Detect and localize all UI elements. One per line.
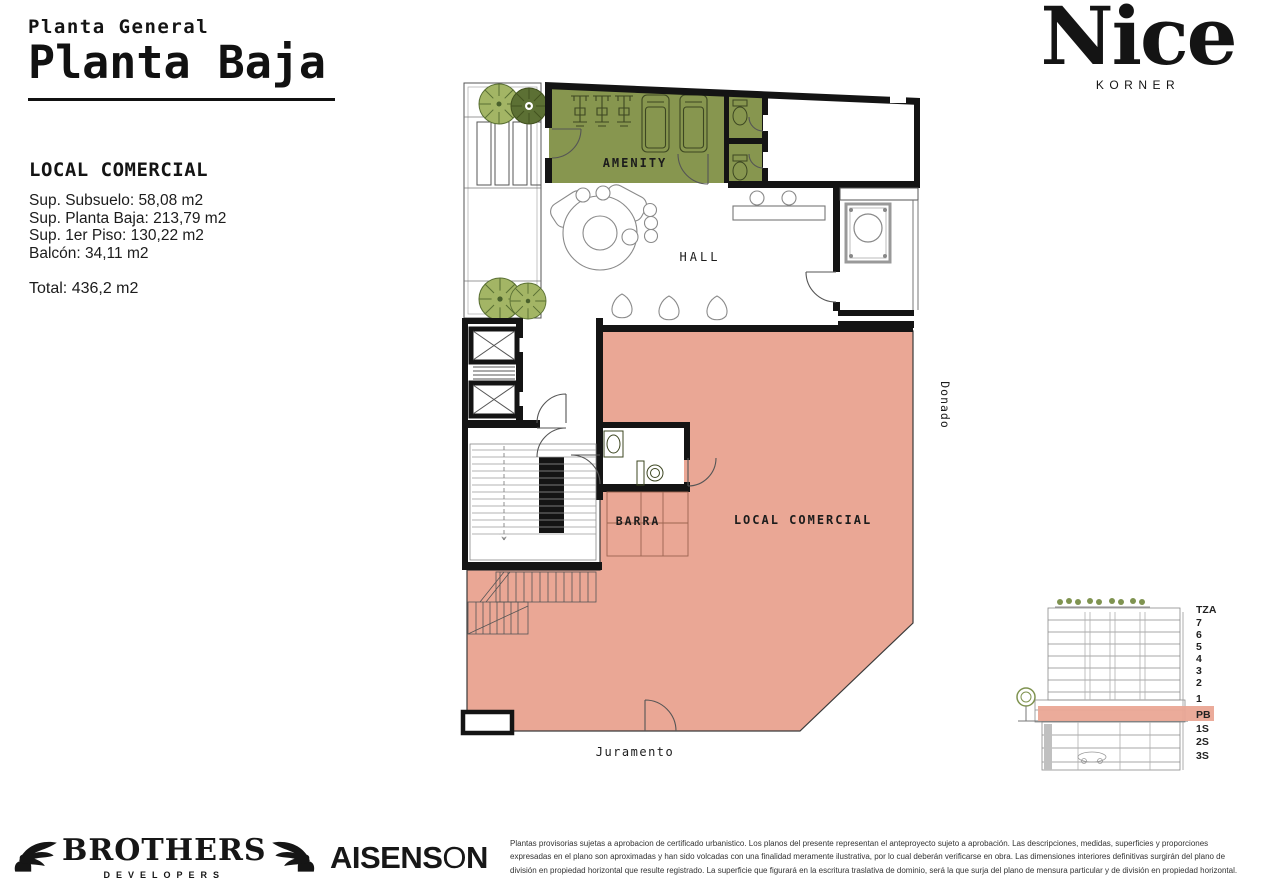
aisenson-logo: AISENSON xyxy=(330,840,488,876)
winged-lion-right-icon xyxy=(269,835,317,881)
label-street-donado: Donado xyxy=(938,381,952,429)
unit-name: LOCAL COMERCIAL xyxy=(29,159,226,181)
brand-logo: Nice KORNER xyxy=(1038,0,1238,92)
floor-label-6: 6 xyxy=(1196,629,1202,641)
elevator-shafts xyxy=(471,329,517,416)
floor-label-7: 7 xyxy=(1196,617,1202,629)
brand-name: Nice xyxy=(1038,0,1238,78)
floor-label-2: 2 xyxy=(1196,677,1202,689)
section-diagram: TZA 7 6 5 4 3 2 1 PB 1S 2S 3S xyxy=(1005,588,1220,783)
surface-line: Sup. Planta Baja: 213,79 m2 xyxy=(29,210,226,228)
stairs-core xyxy=(470,444,596,560)
brothers-subname: DEVELOPERS xyxy=(62,870,267,880)
aisenson-part2: N xyxy=(466,840,488,875)
floor-labels: TZA 7 6 5 4 3 2 1 PB 1S 2S 3S xyxy=(1196,604,1217,762)
section-basement-walls xyxy=(1044,724,1052,770)
floor-label-3s: 3S xyxy=(1196,750,1209,762)
plan-supertitle: Planta General xyxy=(28,16,209,38)
floor-label-2s: 2S xyxy=(1196,736,1209,748)
label-local-comercial: LOCAL COMERCIAL xyxy=(734,513,872,527)
label-hall: HALL xyxy=(680,250,721,264)
page: Planta General Planta Baja LOCAL COMERCI… xyxy=(0,0,1280,886)
legal-disclaimer: Plantas provisorias sujetas a aprobacion… xyxy=(510,837,1247,877)
floor-label-1: 1 xyxy=(1196,693,1202,705)
surface-line: Balcón: 34,11 m2 xyxy=(29,245,226,263)
page-title: Planta Baja xyxy=(28,36,326,89)
entrance-box xyxy=(463,712,512,733)
floor-label-pb: PB xyxy=(1196,709,1211,721)
aisenson-part1: AISENS xyxy=(330,840,442,875)
floor-label-4: 4 xyxy=(1196,653,1202,665)
floor-label-3: 3 xyxy=(1196,665,1202,677)
roof-garden xyxy=(1055,598,1150,607)
planter-box xyxy=(846,204,890,262)
section-tree xyxy=(1017,688,1035,721)
section-drawing xyxy=(1018,608,1188,770)
surface-line: Sup. Subsuelo: 58,08 m2 xyxy=(29,192,226,210)
surface-list: Sup. Subsuelo: 58,08 m2 Sup. Planta Baja… xyxy=(29,192,226,262)
local-comercial-area xyxy=(467,331,913,731)
label-barra: BARRA xyxy=(616,514,661,528)
brothers-text: BROTHERS DEVELOPERS xyxy=(62,833,267,880)
brothers-logo: BROTHERS DEVELOPERS xyxy=(12,833,317,881)
bathroom-block xyxy=(603,428,684,485)
winged-lion-left-icon xyxy=(12,835,60,881)
surface-total: Total: 436,2 m2 xyxy=(29,280,226,298)
floor-label-tza: TZA xyxy=(1196,604,1217,616)
floor-label-1s: 1S xyxy=(1196,723,1209,735)
label-street-juramento: Juramento xyxy=(596,745,675,759)
unit-info: LOCAL COMERCIAL Sup. Subsuelo: 58,08 m2 … xyxy=(29,159,226,298)
title-underline xyxy=(28,98,335,101)
brothers-name: BROTHERS xyxy=(62,833,267,869)
aisenson-outline-o: O xyxy=(442,840,466,875)
floor-label-5: 5 xyxy=(1196,641,1202,653)
floor-plan: AMENITY HALL BARRA LOCAL COMERCIAL Juram… xyxy=(440,55,985,790)
pb-highlight-band xyxy=(1038,706,1214,721)
surface-line: Sup. 1er Piso: 130,22 m2 xyxy=(29,227,226,245)
label-amenity: AMENITY xyxy=(603,156,668,170)
